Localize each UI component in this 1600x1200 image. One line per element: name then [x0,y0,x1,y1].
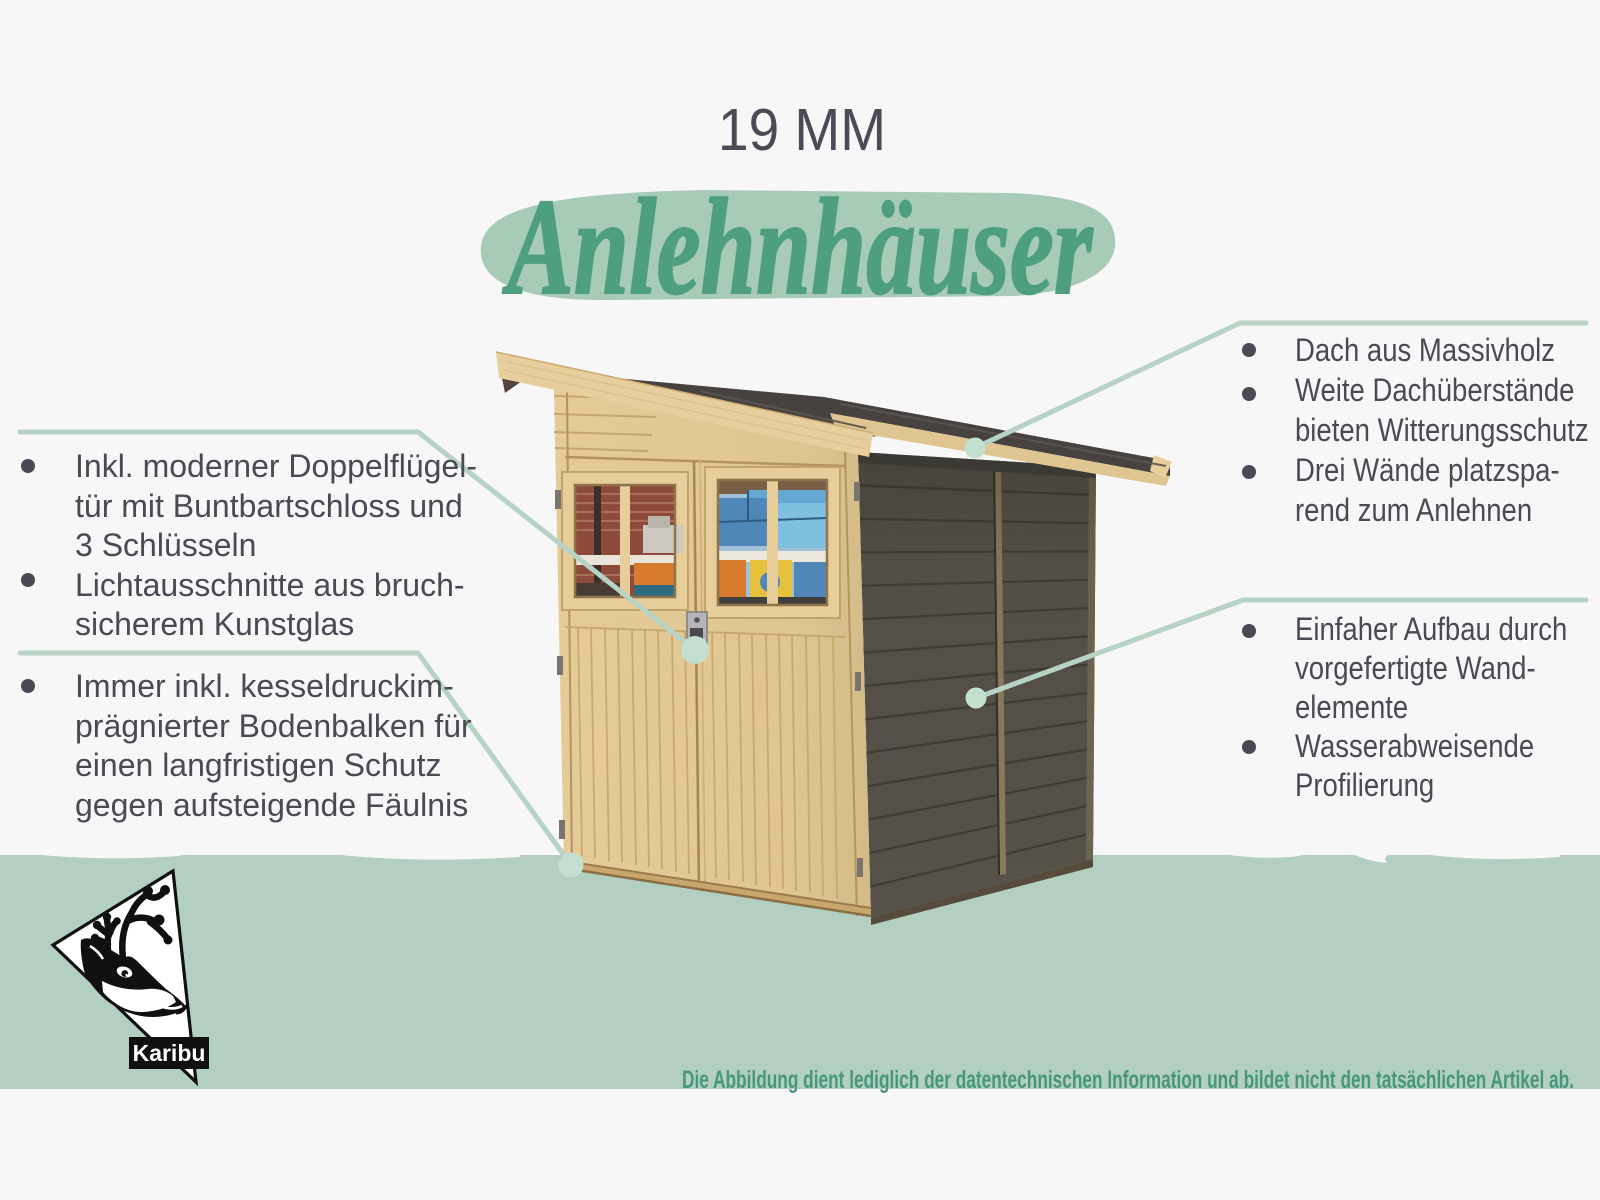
svg-text:19 MM: 19 MM [718,97,886,163]
svg-text:Die Abbildung dient lediglich: Die Abbildung dient lediglich der datent… [682,1066,1574,1094]
svg-text:Anlehnhäuser: Anlehnhäuser [502,170,1094,323]
svg-text:Karibu: Karibu [133,1040,206,1066]
